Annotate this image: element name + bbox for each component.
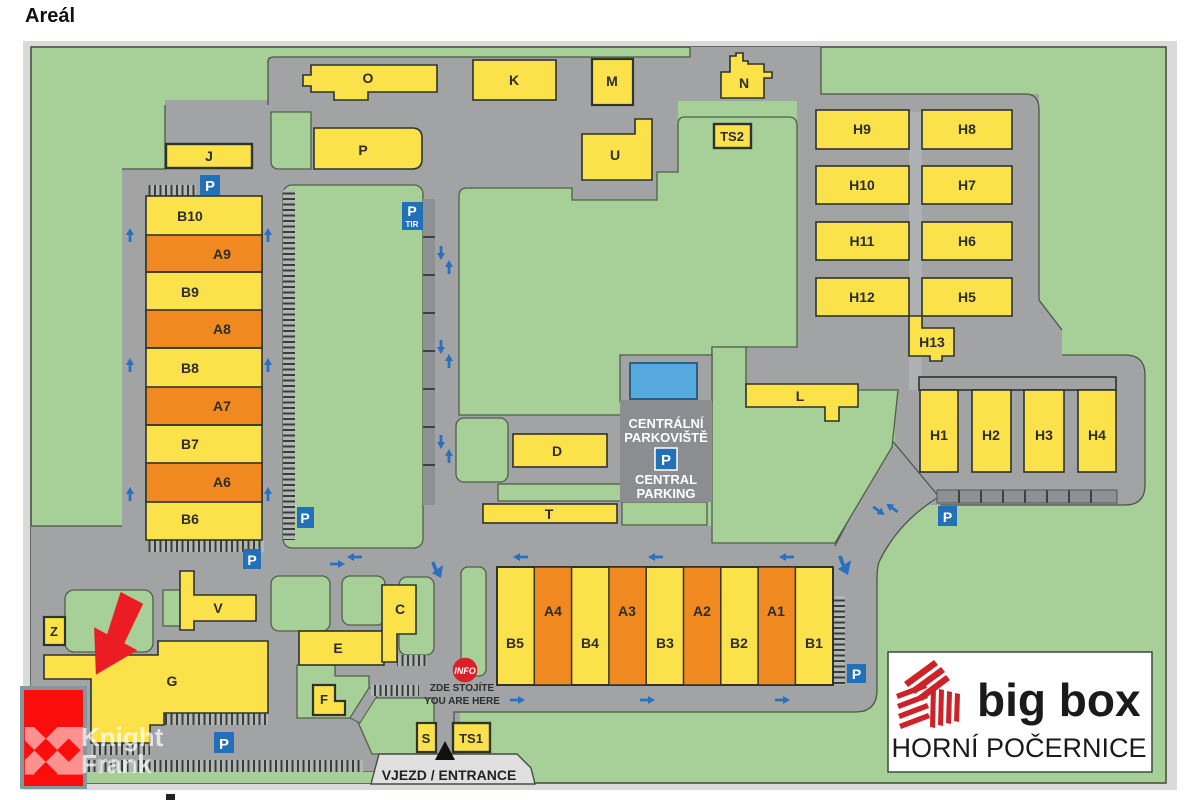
svg-text:B8: B8 (181, 360, 199, 376)
svg-text:D: D (552, 443, 562, 459)
svg-text:P: P (661, 452, 671, 469)
svg-text:CENTRÁLNÍ: CENTRÁLNÍ (628, 416, 703, 431)
svg-text:P: P (943, 509, 952, 525)
svg-text:B2: B2 (730, 635, 748, 651)
svg-text:P: P (852, 666, 861, 682)
svg-text:PARKING: PARKING (637, 486, 696, 501)
svg-text:B1: B1 (805, 635, 823, 651)
svg-text:P: P (407, 203, 416, 219)
svg-text:INFO: INFO (454, 666, 476, 676)
svg-text:A4: A4 (544, 603, 562, 619)
svg-text:P: P (219, 736, 229, 753)
svg-text:B10: B10 (177, 208, 203, 224)
svg-text:P: P (247, 552, 256, 568)
svg-text:YOU ARE HERE: YOU ARE HERE (424, 696, 500, 707)
svg-text:A9: A9 (213, 246, 231, 262)
svg-text:L: L (796, 388, 805, 404)
svg-text:N: N (739, 75, 749, 91)
svg-text:B3: B3 (656, 635, 674, 651)
svg-text:HORNÍ POČERNICE: HORNÍ POČERNICE (891, 732, 1146, 763)
svg-text:A1: A1 (767, 603, 785, 619)
svg-text:O: O (363, 70, 374, 86)
svg-text:A8: A8 (213, 321, 231, 337)
svg-text:H13: H13 (919, 334, 945, 350)
svg-text:ZDE STOJÍTE: ZDE STOJÍTE (430, 681, 495, 694)
svg-text:B4: B4 (581, 635, 599, 651)
svg-text:H3: H3 (1035, 427, 1053, 443)
svg-text:TS1: TS1 (459, 731, 483, 746)
svg-text:Knight: Knight (81, 722, 164, 752)
svg-text:H5: H5 (958, 289, 976, 305)
svg-text:U: U (610, 147, 620, 163)
svg-text:PARKOVIŠTĚ: PARKOVIŠTĚ (624, 430, 708, 445)
svg-text:B5: B5 (506, 635, 524, 651)
svg-text:CENTRAL: CENTRAL (635, 472, 697, 487)
svg-text:A7: A7 (213, 398, 231, 414)
svg-text:H8: H8 (958, 121, 976, 137)
svg-text:K: K (509, 72, 519, 88)
svg-text:B7: B7 (181, 436, 199, 452)
svg-text:F: F (320, 692, 328, 707)
svg-text:S: S (422, 731, 431, 746)
svg-text:C: C (395, 601, 405, 617)
svg-text:P: P (358, 142, 367, 158)
svg-text:B6: B6 (181, 511, 199, 527)
svg-text:T: T (545, 506, 554, 522)
svg-text:VJEZD / ENTRANCE: VJEZD / ENTRANCE (382, 767, 517, 783)
svg-text:P: P (205, 178, 215, 195)
svg-text:P: P (300, 510, 309, 526)
svg-text:Frank: Frank (81, 749, 152, 779)
svg-text:G: G (167, 673, 178, 689)
svg-text:H1: H1 (930, 427, 948, 443)
svg-text:Z: Z (50, 624, 58, 639)
svg-text:V: V (213, 600, 223, 616)
svg-text:H4: H4 (1088, 427, 1106, 443)
svg-text:H2: H2 (982, 427, 1000, 443)
svg-text:E: E (333, 640, 342, 656)
svg-text:H9: H9 (853, 121, 871, 137)
svg-text:H6: H6 (958, 233, 976, 249)
svg-text:H12: H12 (849, 289, 875, 305)
svg-text:A2: A2 (693, 603, 711, 619)
svg-text:A6: A6 (213, 474, 231, 490)
svg-text:J: J (205, 148, 213, 164)
svg-text:H10: H10 (849, 177, 875, 193)
svg-text:M: M (606, 73, 618, 89)
svg-text:B9: B9 (181, 284, 199, 300)
svg-text:Areál: Areál (25, 5, 75, 27)
svg-text:big box: big box (977, 674, 1141, 726)
svg-text:TIR: TIR (406, 220, 419, 229)
svg-text:H11: H11 (850, 233, 875, 249)
svg-text:A3: A3 (618, 603, 636, 619)
svg-text:TS2: TS2 (720, 129, 744, 144)
svg-text:H7: H7 (958, 177, 976, 193)
